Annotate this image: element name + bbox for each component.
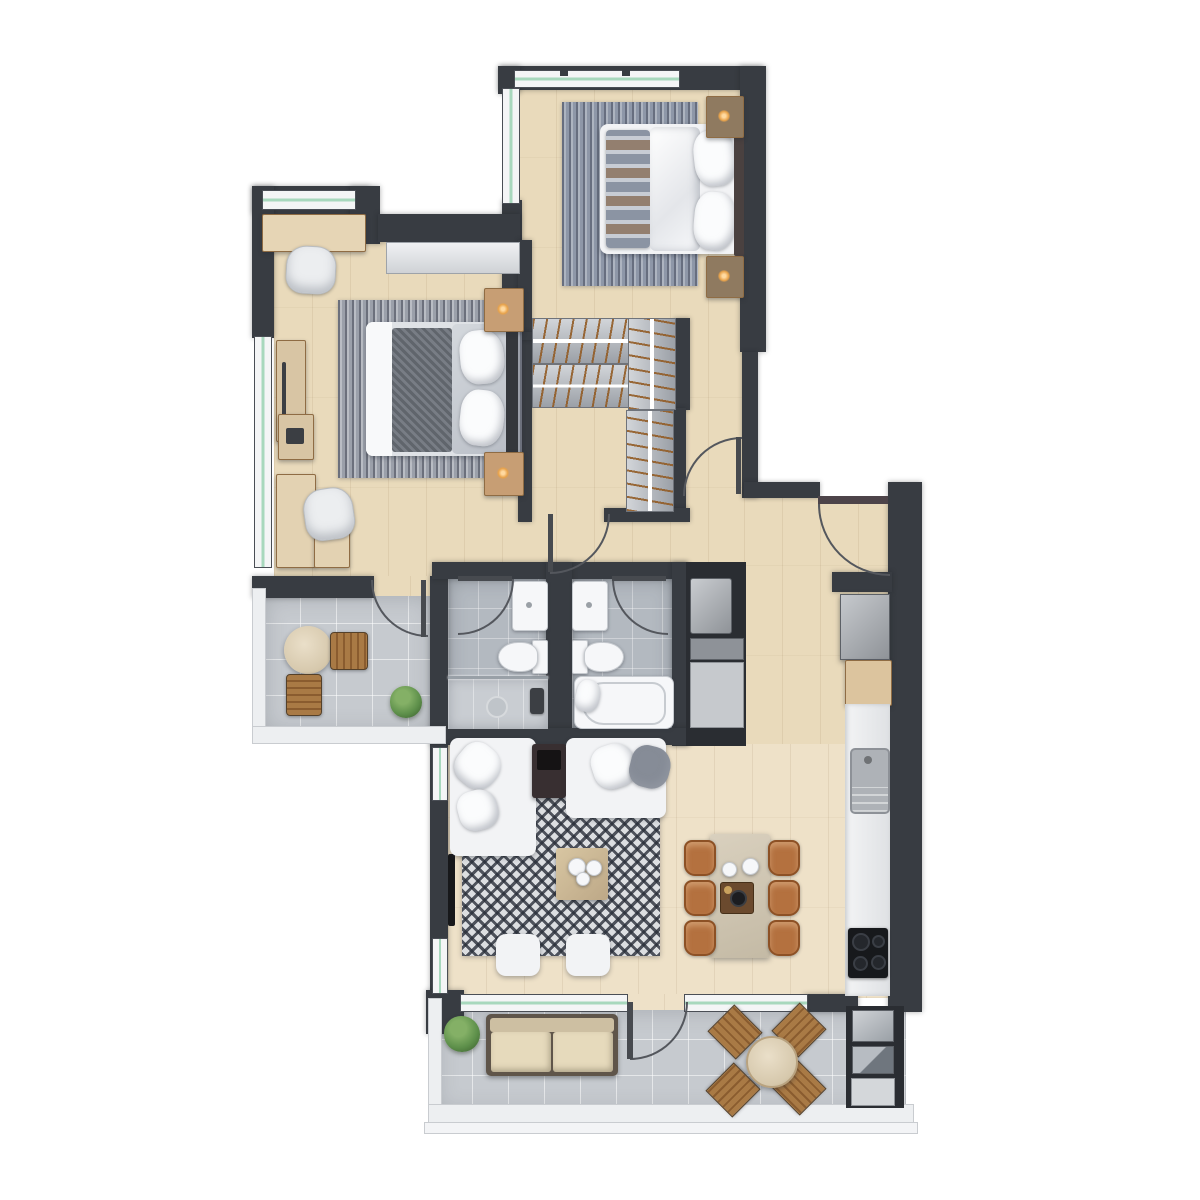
entry-wall-left	[744, 482, 820, 498]
basin-drain-dot	[586, 602, 592, 608]
living-left-window-1	[432, 747, 448, 801]
table-lamp	[497, 467, 509, 479]
bedroom2-desk-chair	[285, 245, 337, 296]
washing-machine	[690, 578, 732, 634]
table-lamp	[718, 110, 730, 122]
console-tray	[537, 750, 561, 770]
basin-drain-dot	[526, 602, 532, 608]
terrace-window-2	[684, 994, 808, 1012]
dining-chair	[684, 840, 716, 876]
bathroom2-toilet-bowl	[584, 642, 624, 672]
ottoman	[496, 934, 540, 976]
bathroom-left-wall	[430, 576, 448, 746]
window-mullion	[622, 70, 630, 76]
east-notch-wall	[742, 352, 758, 498]
module-panel-mid	[852, 1046, 894, 1074]
balcony-chair	[330, 632, 368, 670]
cooktop-burner	[853, 956, 868, 971]
outdoor-sofa-back	[490, 1018, 614, 1032]
east-exterior-wall	[888, 482, 922, 1012]
balcony-round-table	[284, 626, 332, 674]
master-bed-headboard	[734, 122, 744, 256]
cooktop-burner	[872, 935, 885, 948]
bathroom2-door-leaf	[612, 576, 666, 581]
utility-cabinet-front	[690, 662, 744, 728]
wardrobe-unit-hangers	[626, 410, 674, 512]
dining-plate	[722, 862, 737, 877]
dining-chair	[684, 880, 716, 916]
dining-chair	[768, 920, 800, 956]
bedroom2-bed-sheet	[366, 322, 392, 456]
bedroom2-headboard	[506, 318, 518, 460]
module-panel-top	[852, 1010, 894, 1042]
balcony-chair	[286, 674, 322, 716]
floor-plan-canvas	[0, 0, 1200, 1200]
kitchen-counter-wood	[845, 660, 892, 706]
outdoor-sofa-cushion	[553, 1032, 613, 1072]
terrace-round-table	[746, 1036, 798, 1088]
entry-door-leaf	[818, 496, 888, 504]
dining-chair	[684, 920, 716, 956]
cabinet-slot	[286, 428, 304, 444]
shower-fixture	[530, 688, 544, 714]
centerpiece-bottle	[730, 890, 747, 907]
potted-plant	[390, 686, 422, 718]
master-left-window	[502, 88, 520, 204]
bedroom2-bed-throw	[392, 328, 452, 452]
module-panel-bottom	[851, 1078, 895, 1106]
potted-plant	[444, 1016, 480, 1052]
bathroom1-toilet-bowl	[498, 642, 538, 672]
bedroom2-top-right-wall	[378, 214, 520, 242]
terrace-railing-bottom	[428, 1104, 914, 1124]
ottoman	[566, 934, 610, 976]
terrace-outer-ledge	[424, 1122, 918, 1134]
shower-drain	[486, 696, 508, 718]
master-bed-runner-blanket	[606, 130, 650, 248]
balcony-railing-bottom	[252, 726, 446, 744]
balcony-door-leaf	[421, 580, 426, 637]
hall-door-leaf	[736, 437, 741, 494]
terrace-window-1	[460, 994, 628, 1012]
outdoor-sofa-cushion	[491, 1032, 551, 1072]
wall-tv	[448, 854, 455, 926]
bathroom1-door-leaf	[458, 576, 512, 581]
bedroom2-left-window	[254, 336, 272, 568]
bedroom2-wardrobe-builtin	[386, 242, 520, 274]
refrigerator	[840, 594, 890, 660]
window-mullion	[560, 70, 568, 76]
shower-glass-partition	[448, 676, 548, 679]
centerpiece-bowl	[724, 886, 732, 894]
utility-shelf	[690, 638, 744, 660]
table-lamp	[497, 303, 509, 315]
dining-chair	[768, 880, 800, 916]
master-top-window	[514, 70, 680, 88]
balcony-top-wall	[252, 576, 374, 598]
dining-plate	[742, 858, 759, 875]
cooktop-burner	[871, 955, 886, 970]
wardrobe-right-wall-a	[674, 318, 690, 410]
terrace-railing-left	[428, 998, 442, 1110]
dining-chair	[768, 840, 800, 876]
table-lamp	[718, 270, 730, 282]
living-left-window-2	[432, 938, 448, 994]
wardrobe-unit-hangers	[628, 318, 676, 410]
balcony-railing-left	[252, 588, 266, 742]
cooktop-burner	[852, 933, 870, 951]
bathroom-separator-wall	[546, 562, 572, 746]
dresser-handle	[282, 362, 286, 418]
sink-faucet	[864, 756, 872, 764]
coffee-table-plate	[576, 872, 590, 886]
bedroom2-door-leaf	[548, 514, 553, 572]
terrace-door-leaf	[627, 1002, 633, 1059]
bedroom2-top-window	[262, 190, 356, 210]
